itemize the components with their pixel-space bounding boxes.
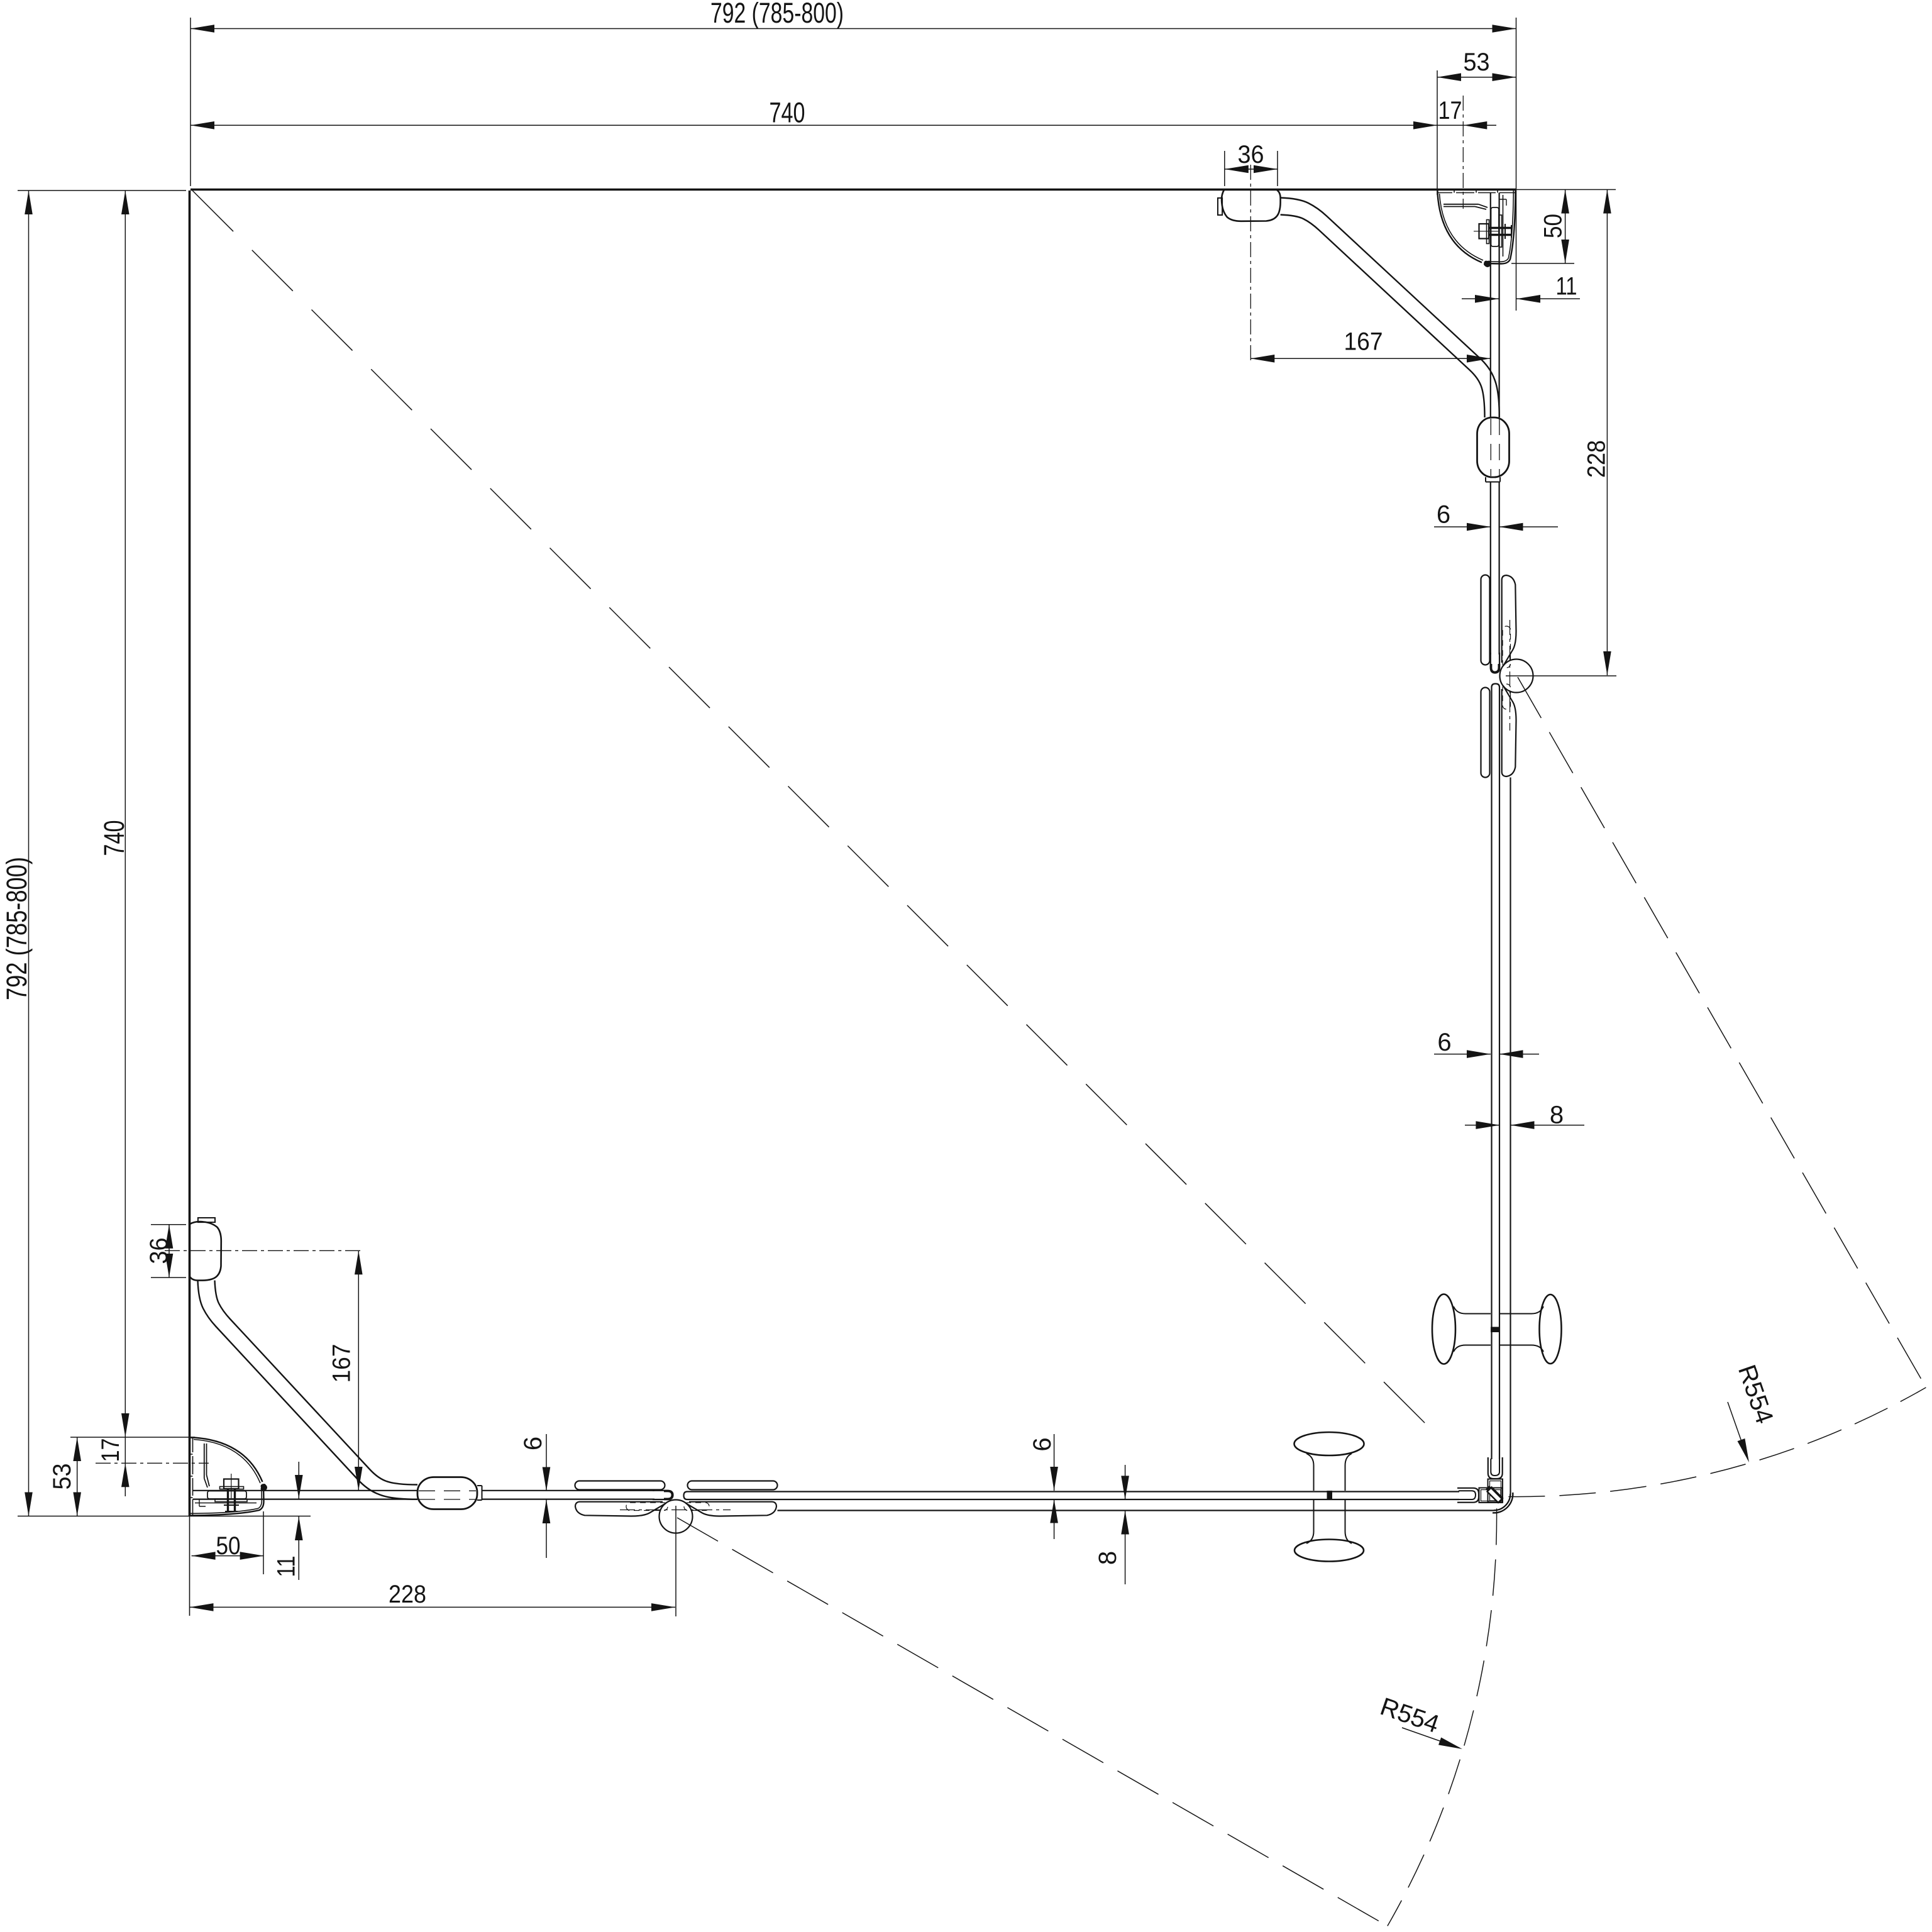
svg-text:167: 167 xyxy=(1344,328,1383,356)
svg-text:50: 50 xyxy=(216,1532,241,1560)
svg-text:17: 17 xyxy=(97,1438,124,1462)
svg-text:792 (785-800): 792 (785-800) xyxy=(1,857,33,1000)
svg-text:6: 6 xyxy=(1437,1029,1451,1056)
svg-text:17: 17 xyxy=(1438,97,1462,124)
svg-text:167: 167 xyxy=(328,1344,356,1383)
svg-text:228: 228 xyxy=(1583,440,1611,478)
svg-text:36: 36 xyxy=(1238,141,1264,168)
svg-text:36: 36 xyxy=(145,1238,173,1264)
svg-text:11: 11 xyxy=(273,1556,301,1577)
svg-text:8: 8 xyxy=(1550,1101,1564,1129)
svg-text:53: 53 xyxy=(1464,48,1490,76)
svg-text:792 (785-800): 792 (785-800) xyxy=(710,0,844,29)
svg-text:11: 11 xyxy=(1556,273,1577,301)
svg-text:8: 8 xyxy=(1094,1551,1122,1565)
svg-text:6: 6 xyxy=(1437,501,1450,529)
svg-text:740: 740 xyxy=(770,97,805,129)
svg-text:228: 228 xyxy=(389,1581,426,1608)
svg-text:53: 53 xyxy=(48,1464,76,1490)
svg-text:6: 6 xyxy=(519,1437,547,1450)
svg-text:6: 6 xyxy=(1029,1437,1056,1451)
svg-text:50: 50 xyxy=(1540,214,1567,238)
svg-text:740: 740 xyxy=(98,820,130,856)
